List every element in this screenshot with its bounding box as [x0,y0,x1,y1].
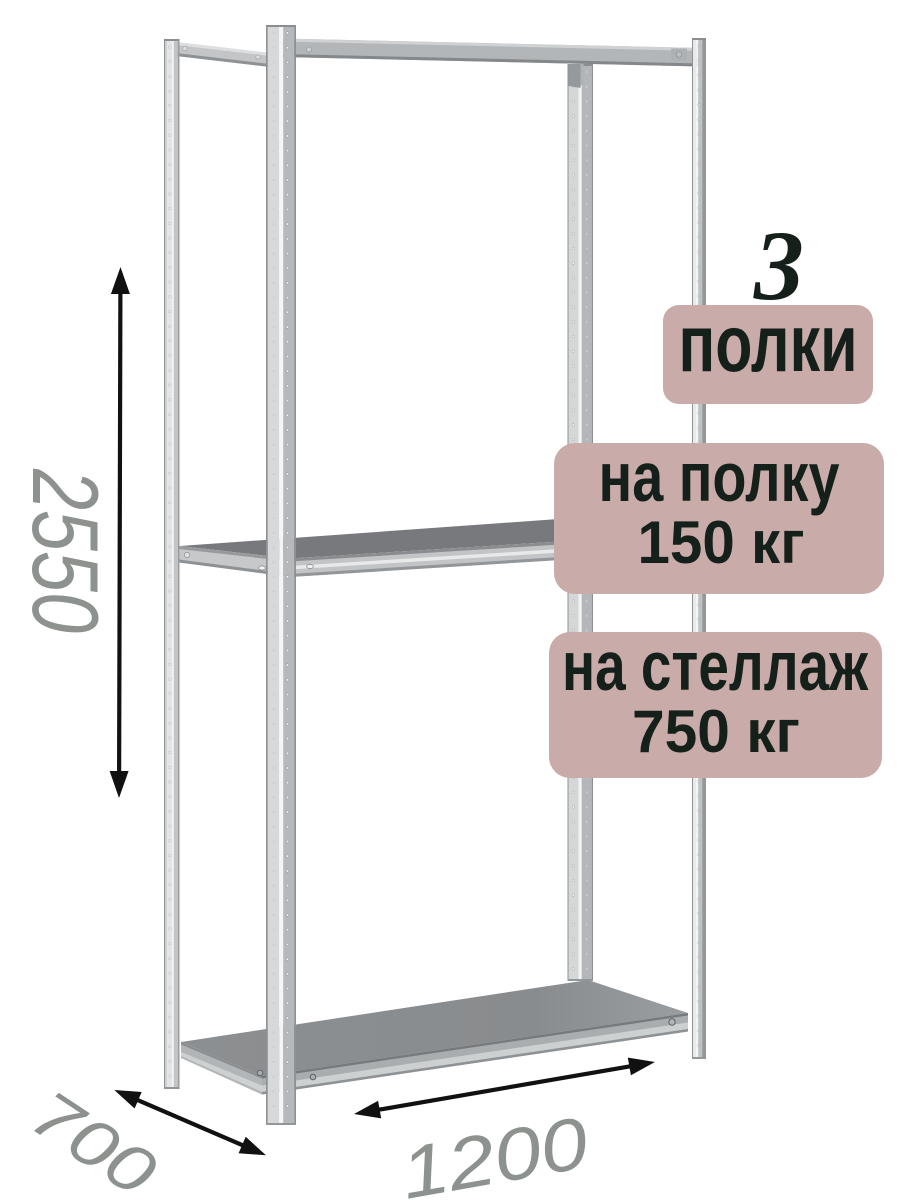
svg-text:750 кг: 750 кг [632,698,800,765]
svg-text:на стеллаж: на стеллаж [562,627,869,705]
svg-text:на полку: на полку [599,438,840,516]
svg-text:2550: 2550 [13,468,118,633]
svg-text:полки: полки [679,299,858,389]
svg-text:150 кг: 150 кг [638,509,805,576]
